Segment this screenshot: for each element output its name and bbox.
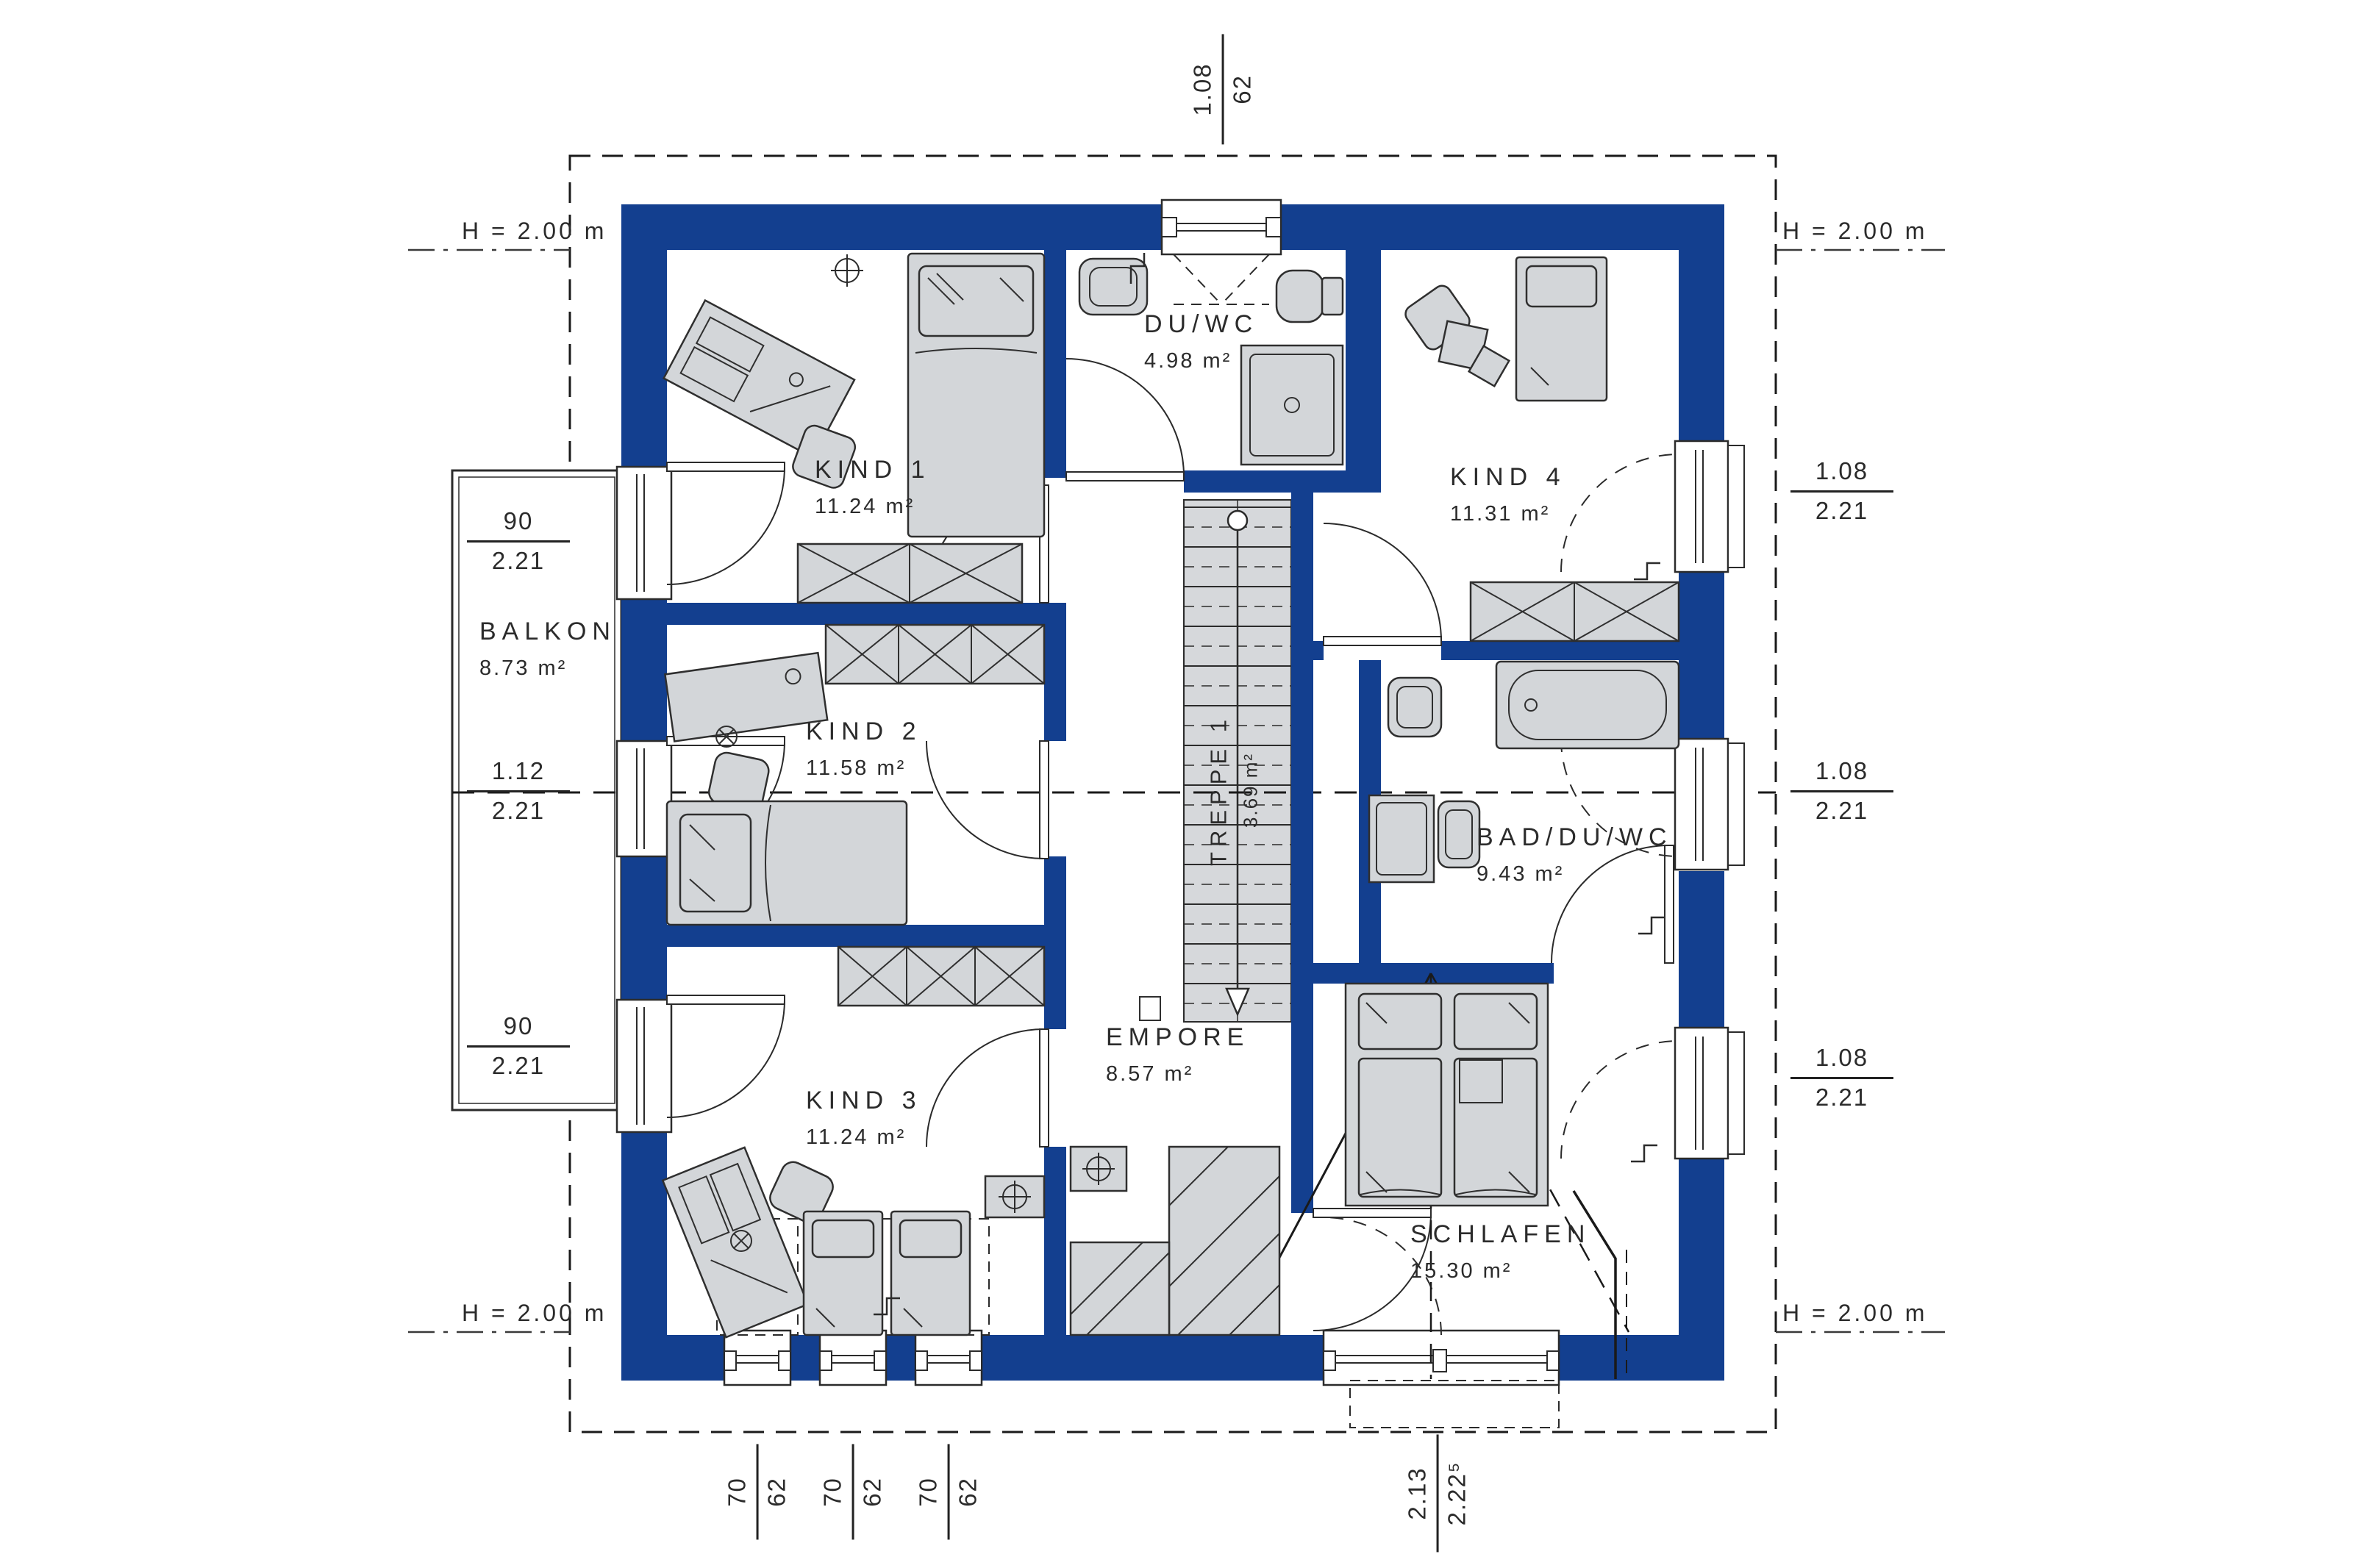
room-area: 8.57 m² bbox=[1106, 1062, 1249, 1086]
dimension-bottom-3: 70 62 bbox=[915, 1444, 983, 1539]
furniture-kind4 bbox=[1402, 257, 1679, 641]
height-marker-bottom-left: H = 2.00 m bbox=[462, 1300, 607, 1327]
room-area: 8.73 m² bbox=[479, 656, 616, 681]
height-marker-top-left: H = 2.00 m bbox=[462, 218, 607, 245]
room-name: KIND 1 bbox=[815, 456, 931, 484]
dimension-bottom-1: 70 62 bbox=[724, 1444, 792, 1539]
room-name: TREPPE 1 bbox=[1206, 715, 1232, 866]
dimension-bottom-schlafen: 2.13 2.22⁵ bbox=[1404, 1434, 1472, 1552]
floor-plan: KIND 1 11.24 m² DU/WC 4.98 m² KIND 4 11.… bbox=[0, 0, 2353, 1568]
room-label-kind1: KIND 1 11.24 m² bbox=[815, 456, 931, 519]
dimension-bottom-2: 70 62 bbox=[819, 1444, 888, 1539]
floor-plan-drawing bbox=[0, 0, 2353, 1568]
dimension-left-2: 1.12 2.21 bbox=[467, 757, 570, 826]
window-bottom-3 bbox=[915, 1331, 982, 1385]
room-area: 11.58 m² bbox=[806, 756, 922, 781]
balcony-door-2 bbox=[617, 741, 671, 856]
dimension-right-2: 1.08 2.21 bbox=[1790, 757, 1893, 826]
room-name: SCHLAFEN bbox=[1410, 1220, 1590, 1249]
room-area: 9.43 m² bbox=[1477, 862, 1673, 887]
window-right-2 bbox=[1675, 739, 1744, 870]
room-area: 15.30 m² bbox=[1410, 1259, 1590, 1284]
room-area: 3.69 m² bbox=[1240, 715, 1263, 866]
room-area: 4.98 m² bbox=[1144, 349, 1258, 373]
room-area: 11.24 m² bbox=[806, 1125, 922, 1150]
room-name: BALKON bbox=[479, 617, 616, 646]
room-name: KIND 4 bbox=[1450, 463, 1566, 492]
room-label-kind3: KIND 3 11.24 m² bbox=[806, 1086, 922, 1150]
room-label-schlafen: SCHLAFEN 15.30 m² bbox=[1410, 1220, 1590, 1284]
balcony-door-1 bbox=[617, 467, 671, 599]
room-label-balkon: BALKON 8.73 m² bbox=[479, 617, 616, 681]
dimension-left-3: 90 2.21 bbox=[467, 1012, 570, 1081]
room-name: KIND 2 bbox=[806, 717, 922, 746]
dimension-left-1: 90 2.21 bbox=[467, 507, 570, 576]
room-label-duwc: DU/WC 4.98 m² bbox=[1144, 310, 1258, 373]
room-area: 11.31 m² bbox=[1450, 502, 1566, 526]
dimension-right-1: 1.08 2.21 bbox=[1790, 457, 1893, 526]
window-top-duwc bbox=[1162, 200, 1281, 254]
furniture-kind1 bbox=[664, 254, 1044, 603]
furniture-schlafen bbox=[1346, 984, 1548, 1206]
room-label-badduwc: BAD/DU/WC 9.43 m² bbox=[1477, 823, 1673, 887]
balcony-door-3 bbox=[617, 1000, 671, 1132]
height-marker-top-right: H = 2.00 m bbox=[1782, 218, 1927, 245]
room-name: EMPORE bbox=[1106, 1023, 1249, 1052]
window-right-1 bbox=[1675, 441, 1744, 572]
dimension-right-3: 1.08 2.21 bbox=[1790, 1044, 1893, 1112]
room-name: BAD/DU/WC bbox=[1477, 823, 1673, 852]
room-label-kind2: KIND 2 11.58 m² bbox=[806, 717, 922, 781]
window-bottom-schlafen bbox=[1324, 1331, 1559, 1385]
window-bottom-2 bbox=[820, 1331, 886, 1385]
dimension-top-window: 1.08 62 bbox=[1189, 34, 1257, 144]
furniture bbox=[663, 254, 1679, 1337]
room-name: DU/WC bbox=[1144, 310, 1258, 339]
window-bottom-1 bbox=[724, 1331, 790, 1385]
room-label-kind4: KIND 4 11.31 m² bbox=[1450, 463, 1566, 526]
room-label-treppe: TREPPE 1 3.69 m² bbox=[1206, 715, 1263, 866]
room-label-empore: EMPORE 8.57 m² bbox=[1106, 1023, 1249, 1086]
room-name: KIND 3 bbox=[806, 1086, 922, 1115]
room-area: 11.24 m² bbox=[815, 495, 931, 519]
window-right-3 bbox=[1675, 1028, 1744, 1159]
height-marker-bottom-right: H = 2.00 m bbox=[1782, 1300, 1927, 1327]
